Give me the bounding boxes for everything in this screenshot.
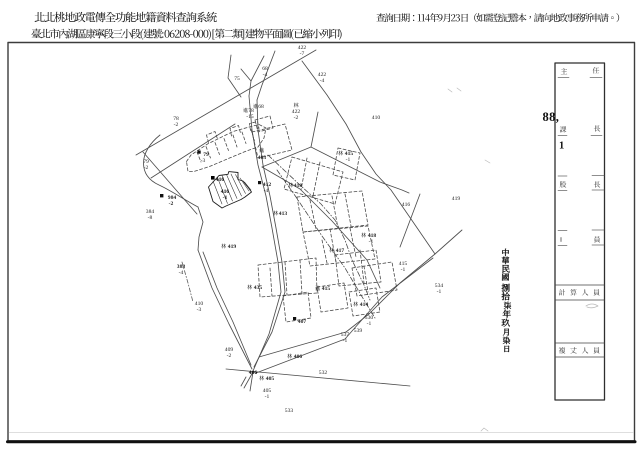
svg-text:532: 532	[319, 370, 328, 376]
svg-text:-2: -2	[227, 353, 232, 359]
svg-text:407: 407	[298, 319, 307, 325]
svg-text:75: 75	[234, 76, 240, 82]
svg-text:68: 68	[258, 104, 264, 110]
svg-text:88,: 88,	[543, 110, 560, 124]
svg-text:-8: -8	[148, 215, 153, 221]
svg-text:-3: -3	[201, 158, 206, 164]
svg-text:416: 416	[216, 177, 225, 183]
svg-text:539: 539	[354, 328, 363, 334]
svg-text:-3: -3	[197, 307, 202, 313]
svg-text:-1: -1	[367, 321, 372, 327]
svg-text:-1: -1	[343, 338, 348, 344]
svg-text:-2: -2	[169, 201, 174, 207]
svg-text:418: 418	[294, 183, 303, 189]
svg-text:1: 1	[559, 141, 564, 152]
svg-text:533: 533	[285, 408, 294, 414]
svg-text:-1: -1	[223, 195, 228, 201]
svg-text:-4: -4	[179, 270, 184, 276]
svg-text:-2: -2	[294, 115, 299, 121]
svg-text:413: 413	[279, 211, 288, 217]
svg-text:-1: -1	[346, 157, 351, 163]
svg-text:419: 419	[228, 244, 237, 250]
svg-text:410: 410	[372, 115, 381, 121]
svg-text:406: 406	[294, 354, 303, 360]
svg-text:403: 403	[258, 155, 267, 161]
svg-text:-4: -4	[320, 78, 325, 84]
svg-text:-4: -4	[264, 188, 269, 194]
svg-text:415: 415	[322, 286, 331, 292]
svg-text:414: 414	[360, 302, 369, 308]
svg-text:-2: -2	[144, 165, 149, 171]
svg-text:-4: -4	[263, 72, 268, 78]
svg-text:-2: -2	[174, 122, 179, 128]
svg-text:-1: -1	[401, 267, 406, 273]
svg-text:-1: -1	[265, 394, 270, 400]
svg-text:-1: -1	[437, 289, 442, 295]
svg-text:419: 419	[452, 196, 461, 202]
svg-text:416: 416	[402, 202, 411, 208]
svg-text:-15: -15	[246, 114, 254, 120]
svg-text:-1: -1	[369, 239, 374, 245]
svg-text:417: 417	[336, 248, 345, 254]
svg-text:-7: -7	[300, 51, 305, 57]
svg-text:435: 435	[254, 285, 263, 291]
svg-text:406: 406	[249, 370, 258, 376]
svg-text:405: 405	[266, 376, 275, 382]
